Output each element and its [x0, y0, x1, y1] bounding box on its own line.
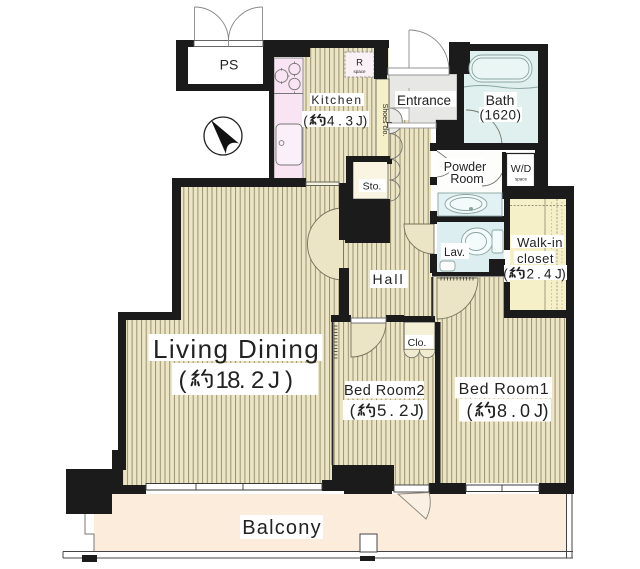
svg-text:Bath: Bath [486, 92, 515, 108]
svg-text:J: J [268, 367, 280, 394]
svg-text:(: ( [179, 367, 187, 394]
svg-text:Bed Room2: Bed Room2 [344, 383, 425, 399]
svg-text:Sto.: Sto. [363, 181, 382, 193]
svg-text:5.: 5. [377, 401, 394, 420]
svg-text:8.: 8. [497, 401, 516, 421]
svg-text:space: space [353, 69, 366, 74]
svg-text:2.4: 2.4 [527, 267, 552, 282]
svg-text:(: ( [503, 266, 508, 282]
svg-text:R: R [356, 58, 363, 69]
svg-text:(1620): (1620) [479, 108, 521, 123]
svg-text:Room: Room [450, 172, 483, 186]
svg-text:): ) [543, 401, 549, 421]
svg-text:Bed Room1: Bed Room1 [459, 381, 550, 398]
svg-text:4.3: 4.3 [327, 114, 353, 129]
svg-text:(: ( [350, 401, 356, 420]
svg-text:J: J [356, 114, 363, 129]
svg-text:Walk-in: Walk-in [517, 235, 563, 250]
svg-text:closet: closet [517, 251, 554, 266]
svg-text:): ) [285, 367, 293, 394]
svg-text:2: 2 [399, 401, 408, 420]
svg-text:18.: 18. [216, 367, 246, 394]
svg-text:Hall: Hall [372, 271, 404, 287]
svg-text:Living Dining: Living Dining [153, 334, 320, 364]
svg-text:Lav.: Lav. [444, 247, 465, 259]
svg-text:0: 0 [520, 401, 530, 421]
svg-text:Balcony: Balcony [242, 517, 322, 539]
svg-text:W/D: W/D [511, 163, 532, 175]
svg-text:Kitchen: Kitchen [311, 93, 362, 107]
svg-text:): ) [363, 114, 368, 129]
svg-text:): ) [418, 401, 424, 420]
svg-text:Shoes clo.: Shoes clo. [381, 104, 388, 137]
svg-text:Clo.: Clo. [408, 337, 427, 349]
svg-text:): ) [561, 267, 566, 282]
svg-text:(: ( [467, 401, 473, 421]
svg-text:PS: PS [220, 57, 239, 73]
svg-text:space: space [515, 177, 528, 182]
svg-text:2: 2 [251, 367, 264, 394]
svg-text:Entrance: Entrance [397, 93, 451, 108]
svg-text:(: ( [303, 114, 308, 129]
